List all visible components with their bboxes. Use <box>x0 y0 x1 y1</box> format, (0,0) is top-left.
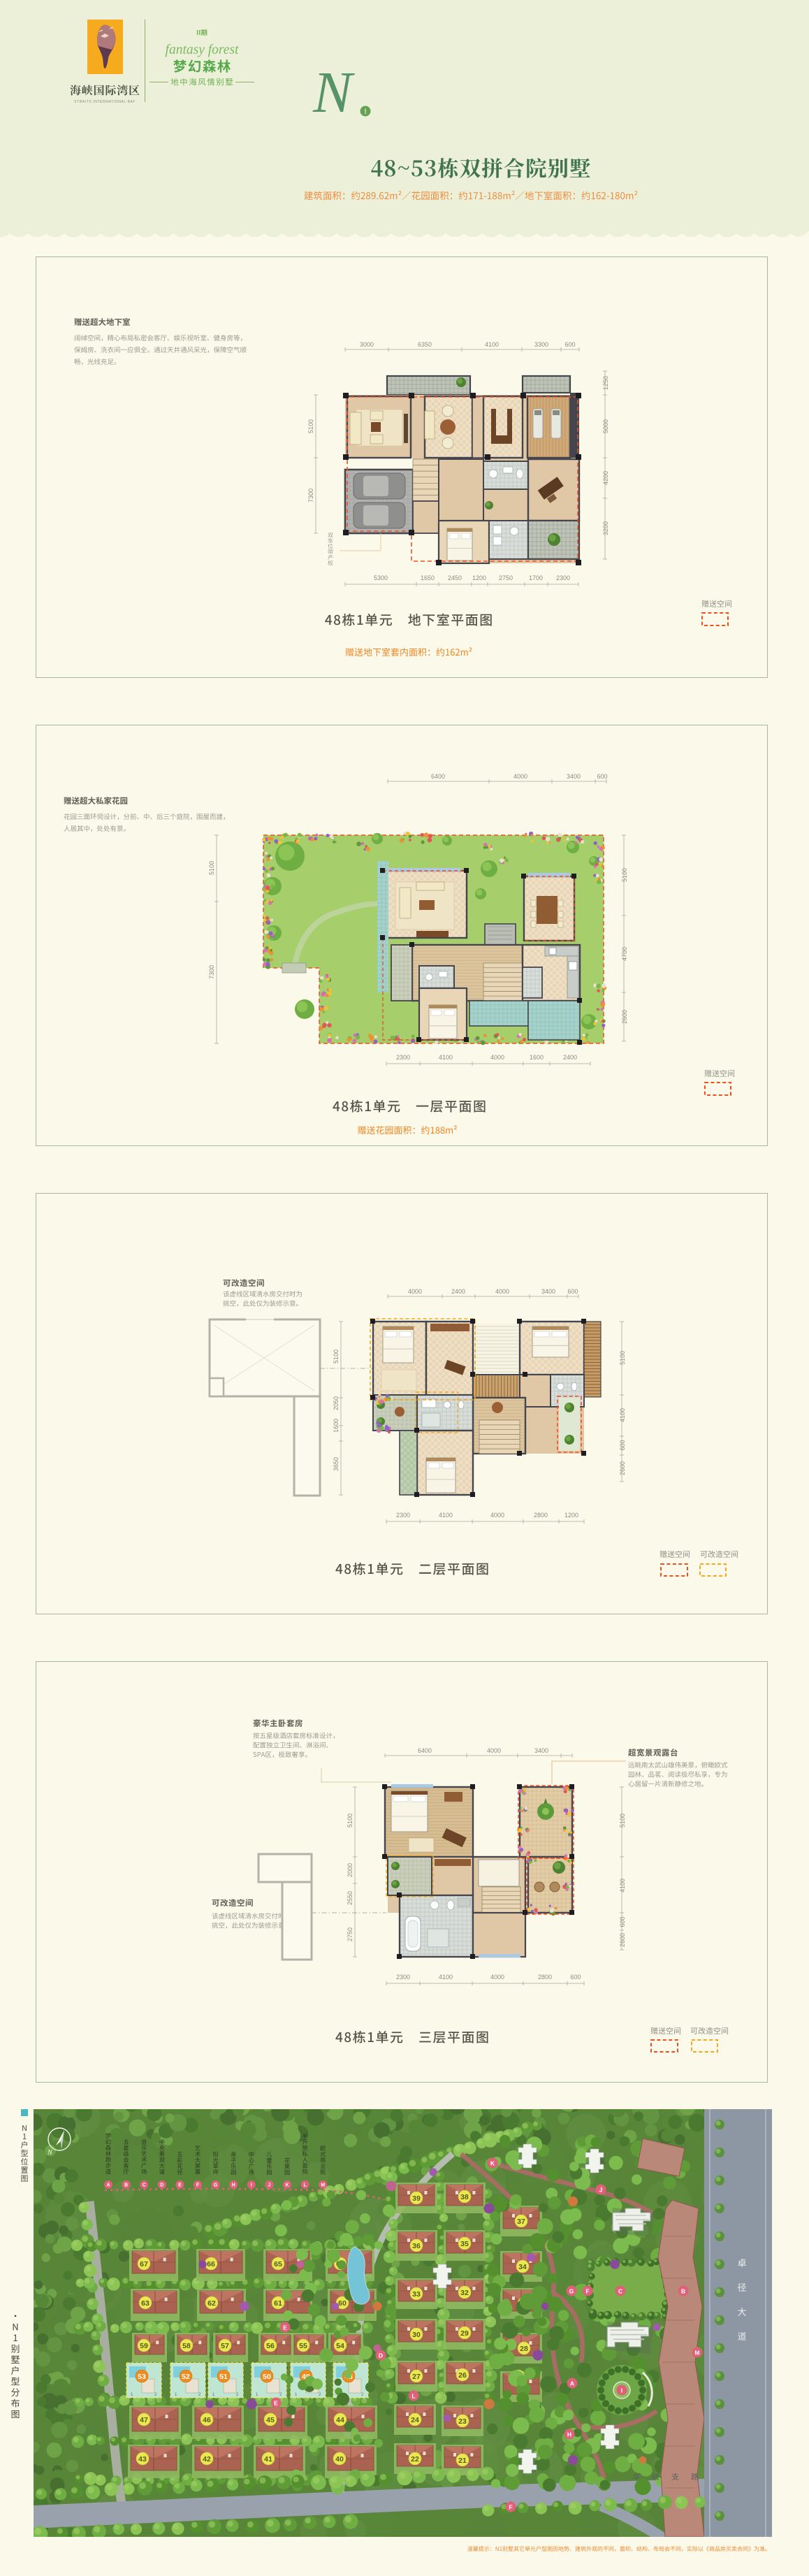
svg-text:5100: 5100 <box>621 868 628 882</box>
svg-text:1250: 1250 <box>602 376 609 390</box>
svg-text:D: D <box>160 2183 163 2188</box>
svg-text:2800: 2800 <box>534 1512 548 1519</box>
svg-text:53: 53 <box>138 2373 146 2381</box>
svg-text:E: E <box>274 2399 278 2406</box>
svg-text:30: 30 <box>412 2331 421 2339</box>
svg-text:4100: 4100 <box>619 1879 626 1893</box>
svg-text:3650: 3650 <box>333 1457 340 1471</box>
svg-text:600: 600 <box>619 1440 626 1450</box>
svg-text:N: N <box>47 2149 53 2157</box>
svg-text:67: 67 <box>140 2260 148 2269</box>
svg-text:4100: 4100 <box>439 1512 453 1519</box>
svg-text:4100: 4100 <box>439 1974 453 1981</box>
svg-text:63: 63 <box>141 2299 150 2308</box>
svg-text:K: K <box>286 2183 289 2188</box>
svg-text:6400: 6400 <box>418 1747 432 1754</box>
svg-text:4000: 4000 <box>495 1288 509 1295</box>
svg-text:A: A <box>570 2380 574 2387</box>
svg-text:5100: 5100 <box>619 1351 626 1365</box>
svg-text:41: 41 <box>264 2455 272 2463</box>
svg-text:59: 59 <box>140 2342 148 2350</box>
svg-text:35: 35 <box>460 2240 469 2248</box>
svg-text:2300: 2300 <box>556 574 570 581</box>
svg-text:I: I <box>621 2387 622 2394</box>
svg-text:3000: 3000 <box>360 341 374 348</box>
svg-text:2750: 2750 <box>347 1927 354 1941</box>
svg-text:22: 22 <box>411 2455 419 2463</box>
svg-text:3400: 3400 <box>534 1747 548 1754</box>
svg-text:4200: 4200 <box>602 471 609 485</box>
svg-text:2600: 2600 <box>621 1010 628 1024</box>
svg-text:D: D <box>379 2352 383 2359</box>
svg-text:2300: 2300 <box>396 1512 410 1519</box>
svg-text:M: M <box>321 2183 325 2188</box>
svg-text:2000: 2000 <box>347 1863 354 1877</box>
svg-text:5000: 5000 <box>602 419 609 433</box>
svg-text:J: J <box>268 2183 270 2188</box>
svg-text:L: L <box>411 2392 415 2399</box>
svg-text:29: 29 <box>460 2329 469 2338</box>
svg-text:50: 50 <box>263 2373 271 2381</box>
svg-text:57: 57 <box>221 2342 229 2350</box>
svg-text:600: 600 <box>597 773 607 780</box>
svg-text:37: 37 <box>517 2217 525 2226</box>
svg-text:5100: 5100 <box>619 1814 626 1828</box>
svg-text:2450: 2450 <box>448 574 462 581</box>
svg-text:46: 46 <box>203 2416 211 2424</box>
svg-text:2300: 2300 <box>396 1974 410 1981</box>
svg-text:B: B <box>124 2183 128 2188</box>
svg-text:6400: 6400 <box>431 773 445 780</box>
svg-text:40: 40 <box>335 2455 344 2463</box>
svg-text:600: 600 <box>619 1916 626 1927</box>
svg-text:21: 21 <box>458 2456 467 2465</box>
svg-text:1650: 1650 <box>421 574 435 581</box>
svg-text:J: J <box>599 2186 603 2193</box>
svg-text:6350: 6350 <box>418 341 432 348</box>
svg-text:33: 33 <box>412 2290 421 2299</box>
svg-text:4000: 4000 <box>513 773 527 780</box>
svg-text:51: 51 <box>219 2373 228 2381</box>
svg-text:28: 28 <box>520 2345 528 2353</box>
svg-text:47: 47 <box>140 2416 148 2424</box>
svg-text:42: 42 <box>203 2455 211 2463</box>
svg-text:4100: 4100 <box>619 1408 626 1422</box>
svg-text:2600: 2600 <box>619 1461 626 1475</box>
svg-text:600: 600 <box>564 341 575 348</box>
svg-text:1600: 1600 <box>530 1054 544 1061</box>
svg-text:F: F <box>585 2287 589 2294</box>
svg-text:1200: 1200 <box>472 574 486 581</box>
svg-text:H: H <box>567 2431 571 2438</box>
svg-text:34: 34 <box>518 2263 527 2271</box>
svg-text:4700: 4700 <box>621 947 628 961</box>
svg-text:2800: 2800 <box>538 1974 552 1981</box>
svg-text:1200: 1200 <box>564 1512 578 1519</box>
svg-text:4000: 4000 <box>490 1512 504 1519</box>
svg-text:F: F <box>509 2503 512 2510</box>
svg-text:23: 23 <box>458 2417 467 2426</box>
svg-text:5100: 5100 <box>347 1814 354 1828</box>
svg-text:66: 66 <box>207 2260 215 2269</box>
svg-text:44: 44 <box>336 2416 344 2424</box>
svg-text:2050: 2050 <box>333 1396 340 1410</box>
svg-text:52: 52 <box>182 2373 190 2381</box>
svg-text:60: 60 <box>338 2299 347 2308</box>
svg-text:26: 26 <box>458 2371 467 2380</box>
svg-text:B: B <box>681 2287 685 2294</box>
svg-text:STRAITS INTERNATIONAL BAY: STRAITS INTERNATIONAL BAY <box>74 100 136 104</box>
svg-text:36: 36 <box>412 2242 421 2250</box>
svg-text:M: M <box>694 2349 699 2356</box>
svg-text:1600: 1600 <box>333 1419 340 1433</box>
svg-text:fantasy forest: fantasy forest <box>166 43 239 57</box>
svg-text:E: E <box>283 2324 287 2331</box>
svg-text:C: C <box>143 2183 146 2188</box>
svg-text:600: 600 <box>570 1974 581 1981</box>
svg-text:G: G <box>569 2287 574 2294</box>
svg-text:600: 600 <box>567 1288 578 1295</box>
svg-text:7300: 7300 <box>307 489 314 502</box>
svg-text:58: 58 <box>182 2342 191 2350</box>
svg-text:1: 1 <box>364 108 367 116</box>
svg-text:4000: 4000 <box>490 1054 504 1061</box>
svg-text:I: I <box>251 2183 252 2188</box>
svg-text:2750: 2750 <box>499 574 513 581</box>
svg-text:H: H <box>232 2183 235 2188</box>
svg-text:43: 43 <box>138 2455 147 2463</box>
svg-text:27: 27 <box>412 2373 421 2381</box>
svg-text:F: F <box>196 2183 199 2188</box>
svg-text:24: 24 <box>411 2416 419 2424</box>
svg-text:G: G <box>214 2183 217 2188</box>
svg-text:3400: 3400 <box>541 1288 555 1295</box>
svg-text:65: 65 <box>274 2260 282 2269</box>
svg-text:56: 56 <box>266 2342 275 2350</box>
svg-text:K: K <box>490 2159 495 2166</box>
svg-text:5100: 5100 <box>208 861 215 875</box>
svg-text:2400: 2400 <box>563 1054 577 1061</box>
svg-text:54: 54 <box>336 2342 344 2350</box>
svg-text:4100: 4100 <box>485 341 499 348</box>
svg-text:A: A <box>107 2183 110 2188</box>
svg-text:2550: 2550 <box>347 1891 354 1905</box>
svg-text:2400: 2400 <box>451 1288 465 1295</box>
svg-text:5100: 5100 <box>307 419 314 433</box>
svg-text:N: N <box>312 60 355 125</box>
svg-text:4100: 4100 <box>439 1054 453 1061</box>
svg-text:2300: 2300 <box>396 1054 410 1061</box>
svg-text:L: L <box>303 2183 306 2188</box>
svg-text:2600: 2600 <box>619 1933 626 1947</box>
svg-text:5100: 5100 <box>333 1349 340 1363</box>
svg-text:3400: 3400 <box>567 773 581 780</box>
svg-text:1700: 1700 <box>529 574 543 581</box>
svg-text:4000: 4000 <box>408 1288 422 1295</box>
svg-text:3300: 3300 <box>534 341 548 348</box>
svg-text:32: 32 <box>460 2289 469 2297</box>
svg-text:62: 62 <box>207 2299 216 2308</box>
svg-text:7300: 7300 <box>208 965 215 979</box>
svg-text:C: C <box>618 2287 622 2294</box>
svg-text:4000: 4000 <box>490 1974 504 1981</box>
svg-text:4000: 4000 <box>487 1747 501 1754</box>
svg-text:61: 61 <box>274 2299 282 2308</box>
svg-text:5300: 5300 <box>374 574 388 581</box>
svg-text:45: 45 <box>266 2416 275 2424</box>
svg-text:E: E <box>178 2183 182 2188</box>
svg-text:55: 55 <box>299 2342 307 2350</box>
svg-text:38: 38 <box>460 2193 469 2201</box>
svg-text:39: 39 <box>412 2194 421 2203</box>
svg-text:3200: 3200 <box>602 521 609 535</box>
